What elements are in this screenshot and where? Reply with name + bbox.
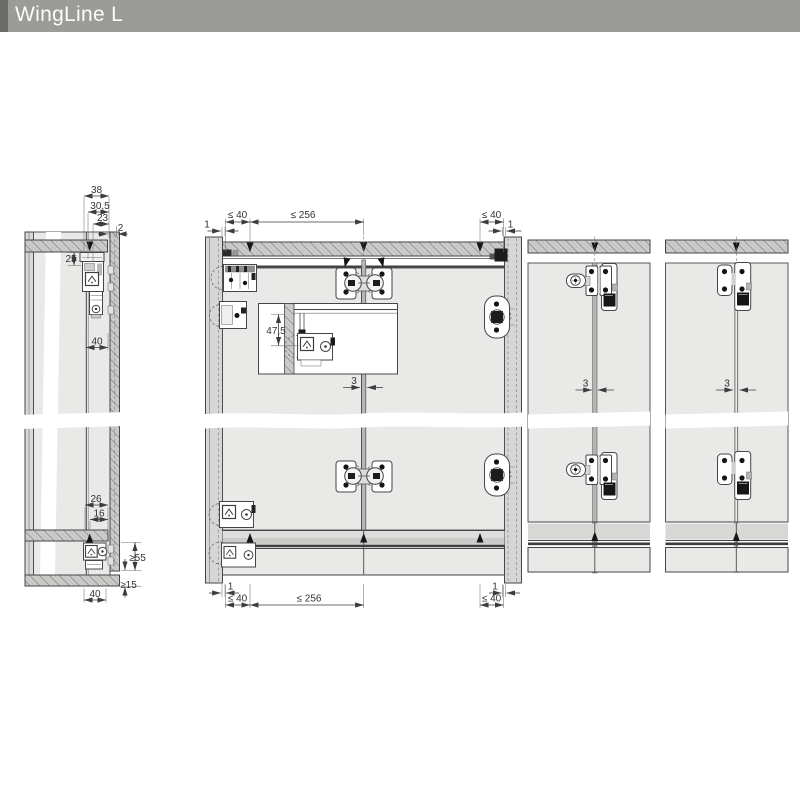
dim-40-top-left: ≤ 40 <box>228 210 248 221</box>
dim-256-bottom: ≤ 256 <box>297 594 322 605</box>
top-panel <box>666 240 789 253</box>
side-section-view: 38 30,5 23 2 25 40 26 16 ≥55 ≥15 40 <box>18 185 146 603</box>
dim-25: 25 <box>65 254 77 265</box>
horizontal-break <box>205 413 522 429</box>
dim-40-top: 40 <box>91 337 103 348</box>
variant-view-a: 3 <box>528 237 650 574</box>
dim-23: 23 <box>97 213 109 224</box>
dim-2: 2 <box>118 223 124 234</box>
title-bar: WingLine L <box>0 0 800 32</box>
dim-40-bottom: 40 <box>89 589 101 600</box>
dim-min-15: ≥15 <box>120 580 137 591</box>
header-accent-bar <box>0 0 8 32</box>
dim-gap-3-front: 3 <box>351 376 357 387</box>
bottom-panel <box>528 548 650 573</box>
dim-1-bottom-right: 1 <box>492 582 498 593</box>
variant-view-b: 3 <box>666 237 789 574</box>
dim-40-bottom-right: ≤ 40 <box>482 594 502 605</box>
dim-min-55: ≥55 <box>129 553 146 564</box>
dim-16: 16 <box>93 509 105 520</box>
front-view: 47,5 3 1 ≤ 40 ≤ 25 <box>204 210 522 608</box>
front-bottom-dimensions: 1 ≤ 40 ≤ 256 ≤ 40 1 <box>209 582 520 609</box>
dim-40-bottom-left: ≤ 40 <box>228 594 248 605</box>
top-panel-section <box>25 240 108 252</box>
dim-38: 38 <box>91 185 103 196</box>
dim-40-top-right: ≤ 40 <box>482 210 502 221</box>
bottom-panel-section <box>25 530 108 541</box>
dim-1-bottom-left: 1 <box>228 582 234 593</box>
dim-256-top: ≤ 256 <box>291 210 316 221</box>
technical-drawing: 38 30,5 23 2 25 40 26 16 ≥55 ≥15 40 <box>0 32 800 800</box>
dim-26: 26 <box>90 494 102 505</box>
dim-gap-3-variant-b: 3 <box>724 379 730 390</box>
page-title: WingLine L <box>15 3 123 27</box>
rail-end-bracket <box>495 249 508 262</box>
top-panel <box>528 240 650 253</box>
bottom-panel <box>666 548 789 573</box>
dim-1-top-right: 1 <box>508 220 514 231</box>
door-gap <box>362 260 366 530</box>
detail-inset: 47,5 <box>259 304 398 375</box>
dim-47-5: 47,5 <box>266 326 286 337</box>
dim-gap-3-variant-a: 3 <box>583 379 589 390</box>
dim-1-top-left: 1 <box>204 220 210 231</box>
right-side-panel <box>505 237 522 583</box>
base-panel-section <box>25 575 120 586</box>
dim-30-5: 30,5 <box>90 201 110 212</box>
